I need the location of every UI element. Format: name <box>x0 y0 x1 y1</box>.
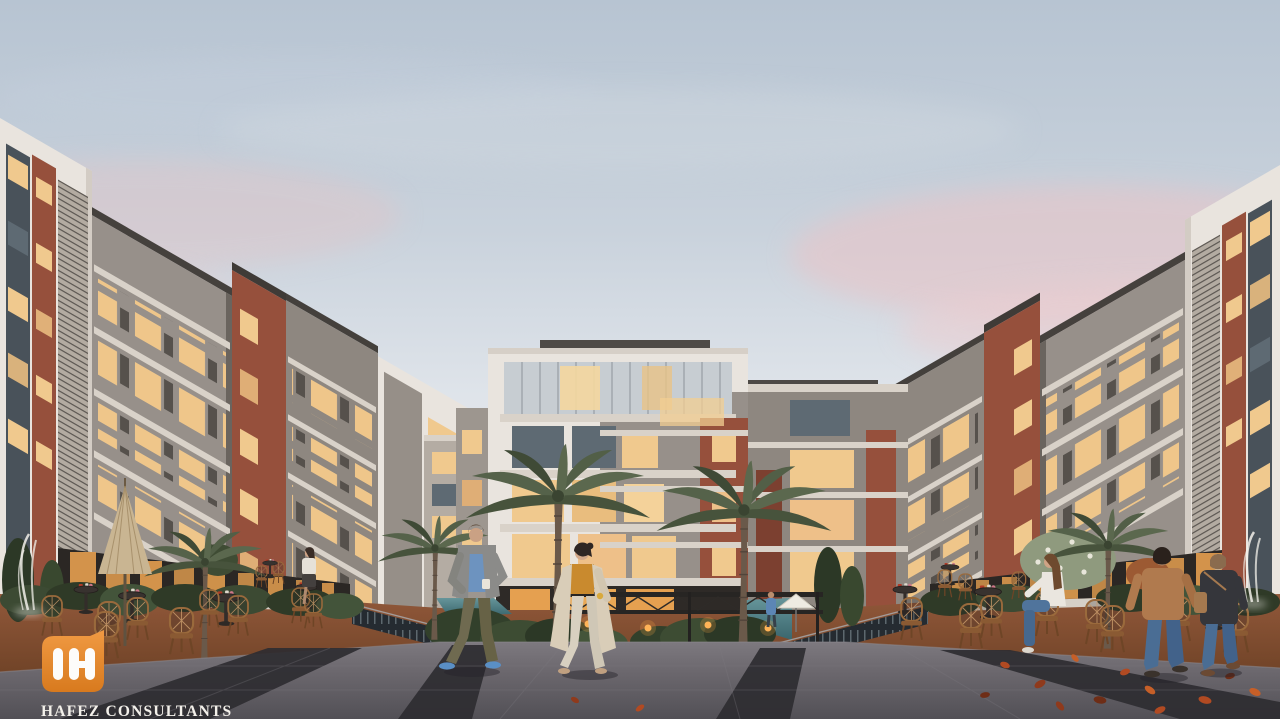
logo-icon <box>42 630 104 692</box>
logo-monogram <box>53 648 95 680</box>
white-flower-bush <box>1020 530 1116 590</box>
render-canvas: HAFEZ CONSULTANTS MOHAMED ESSAM HAFEZ AR… <box>0 0 1280 719</box>
brand-name: HAFEZ CONSULTANTS <box>41 703 232 719</box>
scene: HAFEZ CONSULTANTS MOHAMED ESSAM HAFEZ AR… <box>0 0 1280 719</box>
